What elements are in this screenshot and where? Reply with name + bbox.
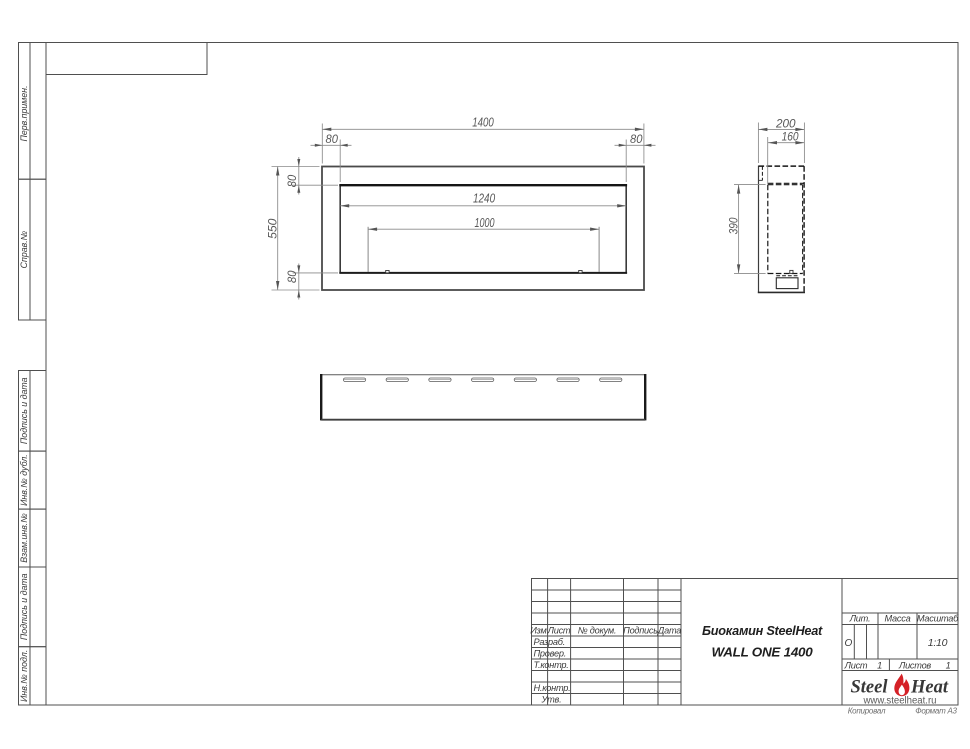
svg-text:Биокамин SteelHeat: Биокамин SteelHeat [702,624,823,638]
svg-text:Перв.примен.: Перв.примен. [19,85,29,141]
svg-text:1:10: 1:10 [928,637,948,649]
svg-text:Разраб.: Разраб. [534,637,566,647]
svg-text:Steel: Steel [851,677,889,697]
svg-text:Копировал: Копировал [848,707,886,716]
svg-text:1: 1 [877,660,882,670]
svg-text:160: 160 [782,131,800,144]
svg-text:WALL ONE 1400: WALL ONE 1400 [712,645,814,660]
svg-text:Лист: Лист [547,625,571,635]
svg-text:О: О [845,638,853,649]
svg-text:Листов: Листов [898,660,931,670]
svg-text:80: 80 [287,174,299,187]
svg-text:390: 390 [728,217,741,235]
svg-text:Справ.№: Справ.№ [19,231,29,269]
svg-text:80: 80 [287,270,299,283]
svg-text:Лит.: Лит. [849,614,871,624]
svg-text:Инв.№ подл.: Инв.№ подл. [19,650,29,702]
svg-text:200: 200 [775,116,796,130]
svg-text:1240: 1240 [473,192,496,205]
svg-text:Взам.инв.№: Взам.инв.№ [19,513,29,563]
svg-text:Инв.№ дубл.: Инв.№ дубл. [19,454,29,506]
svg-text:1: 1 [946,660,951,670]
svg-text:Масса: Масса [885,614,911,624]
svg-text:80: 80 [630,134,643,146]
svg-text:Heat: Heat [910,677,949,697]
svg-text:Формат А3: Формат А3 [915,707,957,716]
svg-text:Лист: Лист [844,660,868,670]
svg-text:Т.контр.: Т.контр. [534,660,569,670]
svg-text:Н.контр.: Н.контр. [534,683,571,693]
svg-text:Изм.: Изм. [530,625,549,635]
svg-text:№ докум.: № докум. [578,625,616,635]
svg-text:80: 80 [326,134,339,146]
svg-text:Провер.: Провер. [534,649,567,659]
svg-text:550: 550 [266,218,280,239]
svg-text:www.steelheat.ru: www.steelheat.ru [863,695,937,706]
svg-text:1000: 1000 [475,217,495,231]
svg-text:Масштаб: Масштаб [917,614,959,624]
svg-text:Подпись и дата: Подпись и дата [19,573,29,640]
svg-text:Подпись и дата: Подпись и дата [19,377,29,444]
svg-text:1400: 1400 [472,117,494,130]
svg-text:Подпись: Подпись [623,625,658,635]
svg-text:Дата: Дата [657,625,681,635]
svg-text:Утв.: Утв. [541,695,562,705]
